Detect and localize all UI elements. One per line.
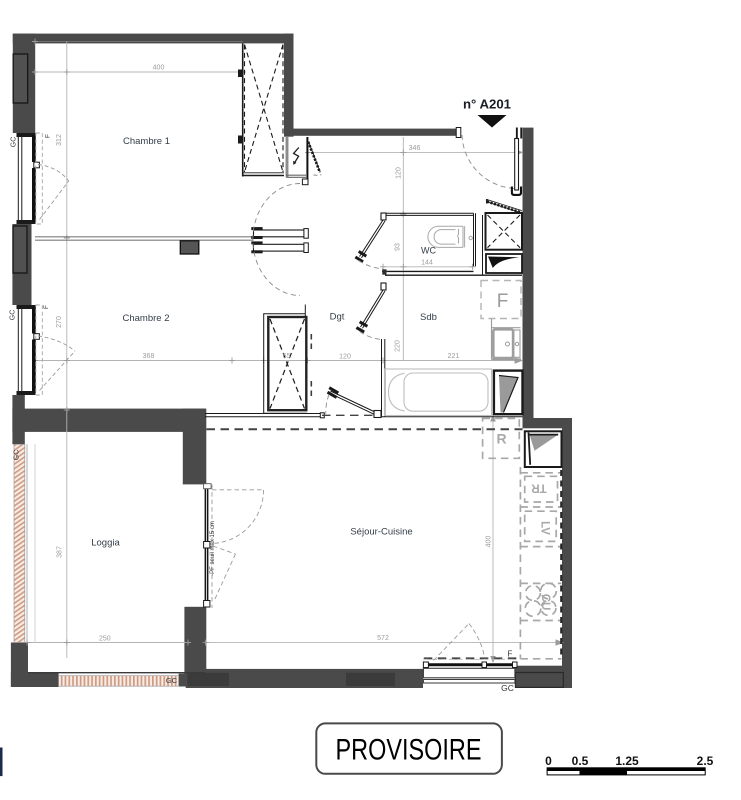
svg-text:120: 120 [396,167,403,179]
svg-text:R: R [496,431,506,447]
svg-text:PROVISOIRE: PROVISOIRE [336,734,482,767]
svg-text:F: F [45,134,52,138]
svg-text:LV: LV [539,521,551,535]
svg-text:Sdb: Sdb [420,312,437,323]
svg-text:F: F [43,305,50,309]
svg-text:2.5: 2.5 [697,754,714,768]
svg-text:GC: GC [11,137,18,148]
svg-text:120: 120 [339,354,351,361]
svg-text:WC: WC [421,246,436,256]
svg-text:F: F [497,291,509,312]
svg-text:250: 250 [99,636,111,643]
svg-text:400: 400 [486,536,493,548]
svg-text:Chambre 2: Chambre 2 [123,313,170,324]
svg-text:CU: CU [539,594,551,611]
svg-text:387: 387 [57,546,64,558]
svg-text:346: 346 [409,145,421,152]
svg-text:Chambre 1: Chambre 1 [123,136,170,147]
svg-text:n° A201: n° A201 [463,97,511,112]
svg-text:93: 93 [395,243,402,251]
svg-text:TR: TR [531,482,547,494]
svg-text:0: 0 [545,754,552,768]
svg-text:270: 270 [56,316,63,328]
svg-text:Dgt: Dgt [330,311,345,322]
svg-text:220: 220 [395,340,402,352]
svg-text:221: 221 [448,353,460,360]
svg-text:144: 144 [421,259,433,266]
svg-text:1.25: 1.25 [615,754,639,768]
svg-text:F: F [508,650,513,659]
svg-text:GC: GC [166,676,178,685]
svg-text:GC: GC [10,310,17,321]
svg-text:400: 400 [153,65,165,72]
svg-text:Séjour-Cuisine: Séjour-Cuisine [350,527,412,538]
svg-text:572: 572 [377,635,389,642]
svg-text:-PF seuil max 15 cm: -PF seuil max 15 cm [210,521,216,576]
svg-text:0.5: 0.5 [572,754,589,768]
svg-text:GC: GC [14,450,21,461]
svg-text:65: 65 [283,353,291,360]
svg-text:Loggia: Loggia [91,537,120,548]
svg-text:368: 368 [143,353,155,360]
svg-text:312: 312 [56,134,63,146]
svg-text:GC: GC [501,683,514,693]
